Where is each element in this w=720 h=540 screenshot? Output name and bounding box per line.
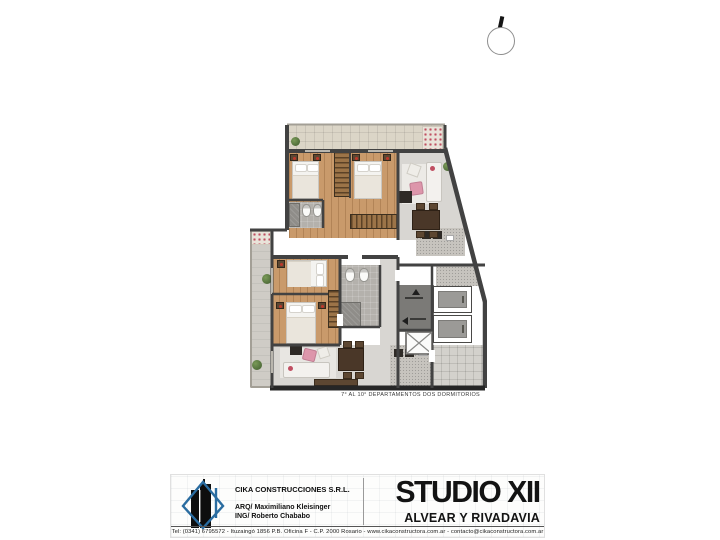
project-title: STUDIO XII [396, 474, 540, 510]
door-opening [395, 270, 401, 281]
door-opening [348, 254, 362, 260]
credit-architect: ARQ/ Maximiliano Kleisinger [235, 504, 330, 511]
plan-caption: 7° AL 10° DEPARTAMENTOS DOS DORMITORIOS [280, 392, 480, 398]
door-opening [337, 314, 343, 326]
door-opening [429, 350, 435, 362]
cika-logo [175, 476, 231, 530]
credit-engineer: ING/ Roberto Chababo [235, 513, 310, 520]
compass-circle [487, 27, 515, 55]
company-name: CIKA CONSTRUCCIONES S.R.L. [235, 485, 350, 494]
project-subtitle: ALVEAR Y RIVADAVIA [360, 511, 540, 525]
floor-plan [250, 118, 487, 392]
walls-overlay [250, 118, 487, 392]
outer-wall-diagonal [445, 148, 485, 388]
footer-contact-line: Tel: (0341) 6795572 - Ituzaingó 1856 P.B… [171, 529, 544, 535]
north-compass [480, 10, 525, 60]
footer-rule [171, 526, 544, 527]
footer: CIKA CONSTRUCCIONES S.R.L. ARQ/ Maximili… [170, 474, 545, 538]
logo-building-gap [199, 490, 200, 522]
